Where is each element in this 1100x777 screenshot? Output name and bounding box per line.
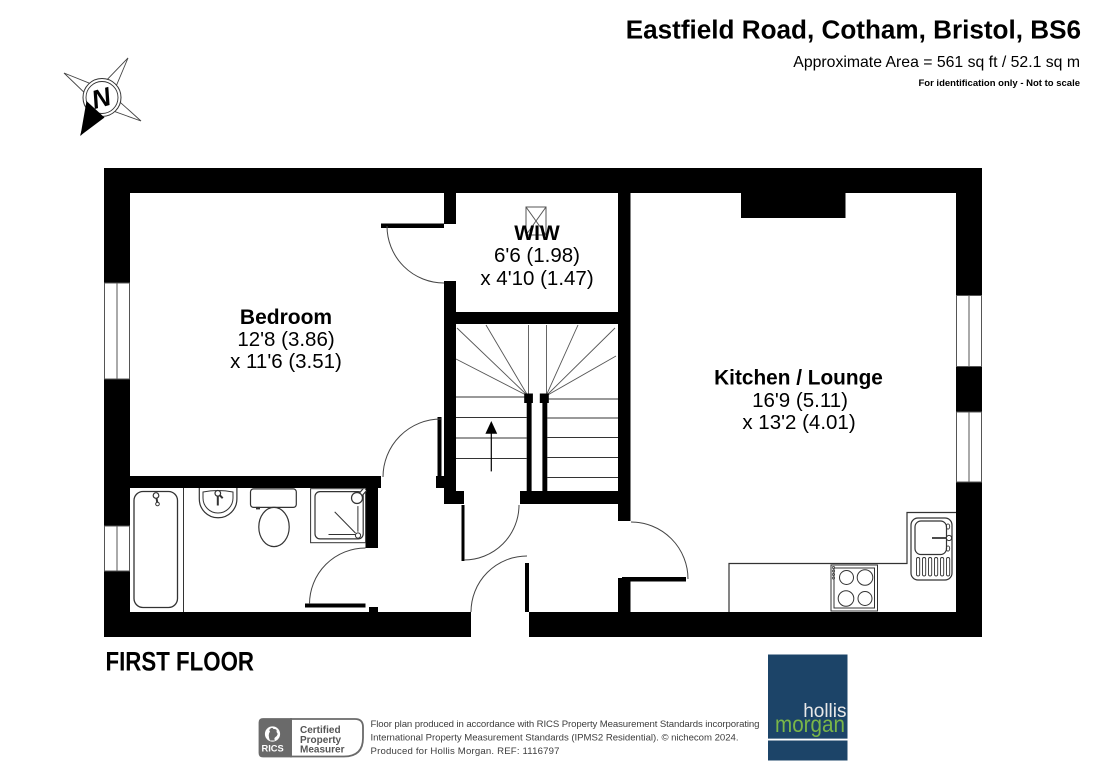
- svg-text:16'9 (5.11): 16'9 (5.11): [752, 389, 848, 412]
- svg-text:Floor plan produced in accorda: Floor plan produced in accordance with R…: [371, 719, 760, 730]
- svg-text:6'6 (1.98): 6'6 (1.98): [494, 244, 580, 267]
- svg-text:International Property Measure: International Property Measurement Stand…: [371, 733, 739, 744]
- svg-text:morgan: morgan: [775, 711, 845, 737]
- svg-text:Measurer: Measurer: [300, 745, 345, 756]
- svg-text:x 4'10 (1.47): x 4'10 (1.47): [480, 267, 593, 290]
- svg-text:For identification only - Not: For identification only - Not to scale: [918, 78, 1080, 89]
- svg-text:Approximate Area = 561 sq ft /: Approximate Area = 561 sq ft / 52.1 sq m: [793, 54, 1080, 71]
- svg-text:Eastfield Road, Cotham, Bristo: Eastfield Road, Cotham, Bristol, BS6: [626, 15, 1081, 45]
- svg-text:x 13'2 (4.01): x 13'2 (4.01): [742, 411, 855, 434]
- svg-text:x 11'6 (3.51): x 11'6 (3.51): [230, 350, 342, 373]
- svg-text:FIRST FLOOR: FIRST FLOOR: [106, 647, 255, 677]
- svg-text:RICS: RICS: [262, 744, 284, 754]
- svg-text:12'8 (3.86): 12'8 (3.86): [237, 328, 334, 351]
- svg-text:Bedroom: Bedroom: [240, 306, 332, 329]
- svg-text:WIW: WIW: [514, 222, 560, 245]
- svg-text:Produced for Hollis Morgan.: Produced for Hollis Morgan. REF: 1116797: [371, 746, 560, 757]
- svg-text:Kitchen / Lounge: Kitchen / Lounge: [714, 367, 883, 390]
